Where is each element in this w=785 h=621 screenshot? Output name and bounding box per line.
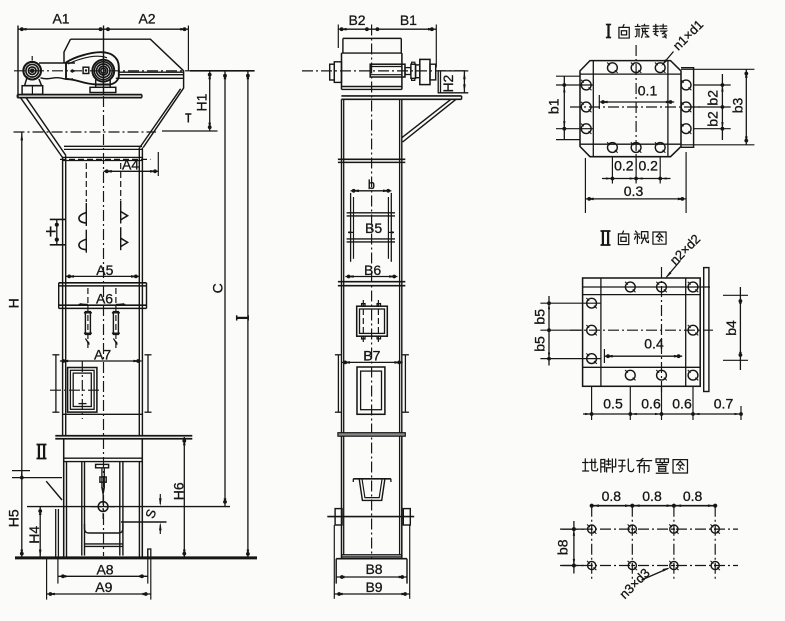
svg-text:b8: b8 <box>555 539 571 555</box>
svg-text:0.8: 0.8 <box>642 488 662 504</box>
svg-text:A5: A5 <box>96 262 113 278</box>
svg-text:A2: A2 <box>138 10 155 26</box>
svg-text:b2: b2 <box>705 111 721 127</box>
svg-text:0.5: 0.5 <box>603 396 623 412</box>
svg-text:B2: B2 <box>348 12 365 28</box>
svg-text:B8: B8 <box>365 561 382 577</box>
svg-text:0.6: 0.6 <box>672 396 692 412</box>
svg-text:0.1: 0.1 <box>638 83 658 99</box>
svg-text:H5: H5 <box>6 509 22 527</box>
svg-text:b2: b2 <box>705 90 721 106</box>
svg-text:H: H <box>6 298 22 308</box>
svg-text:A9: A9 <box>95 579 112 595</box>
svg-text:B7: B7 <box>363 348 380 364</box>
svg-text:B9: B9 <box>365 579 382 595</box>
svg-text:C: C <box>209 283 225 293</box>
svg-text:0.4: 0.4 <box>644 335 664 351</box>
svg-text:0.8: 0.8 <box>602 488 622 504</box>
svg-text:0.3: 0.3 <box>624 183 644 199</box>
svg-text:H4: H4 <box>26 526 42 544</box>
svg-text:H2: H2 <box>440 74 456 92</box>
svg-text:B1: B1 <box>400 12 417 28</box>
svg-text:A8: A8 <box>96 562 113 578</box>
svg-text:A6: A6 <box>96 291 113 307</box>
svg-text:0.8: 0.8 <box>683 488 703 504</box>
svg-text:b: b <box>368 177 375 192</box>
svg-text:H1: H1 <box>193 93 209 111</box>
svg-text:A7: A7 <box>94 346 111 362</box>
svg-text:B6: B6 <box>364 262 381 278</box>
svg-text:b5: b5 <box>532 309 548 325</box>
svg-text:H6: H6 <box>171 482 187 500</box>
svg-text:b1: b1 <box>546 98 562 114</box>
svg-text:b3: b3 <box>730 98 746 114</box>
svg-text:b5: b5 <box>532 336 548 352</box>
svg-text:A4: A4 <box>122 157 139 173</box>
svg-text:A1: A1 <box>52 10 69 26</box>
svg-text:0.2: 0.2 <box>614 158 634 174</box>
svg-text:B5: B5 <box>365 220 382 236</box>
svg-text:0.7: 0.7 <box>714 396 734 412</box>
svg-text:0.2: 0.2 <box>638 158 658 174</box>
svg-text:0.6: 0.6 <box>641 396 661 412</box>
svg-text:b4: b4 <box>723 320 739 336</box>
